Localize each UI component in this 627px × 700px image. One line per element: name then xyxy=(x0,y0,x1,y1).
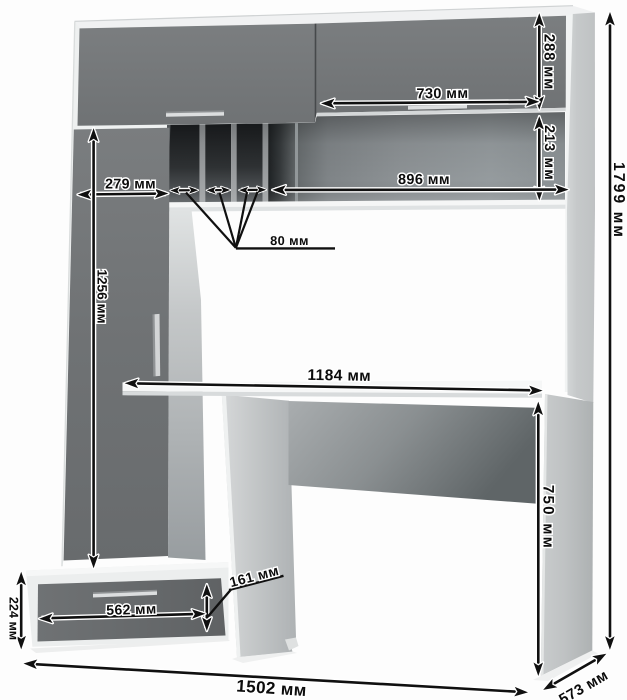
svg-text:1256 мм: 1256 мм xyxy=(95,269,110,323)
svg-text:562 мм: 562 мм xyxy=(106,601,157,618)
svg-text:1799 мм: 1799 мм xyxy=(610,162,627,239)
svg-text:288 мм: 288 мм xyxy=(541,34,558,90)
svg-text:279 мм: 279 мм xyxy=(105,176,156,192)
svg-text:730 мм: 730 мм xyxy=(416,86,468,102)
svg-text:896 мм: 896 мм xyxy=(398,172,450,188)
svg-text:1184 мм: 1184 мм xyxy=(307,367,371,385)
svg-text:224 мм: 224 мм xyxy=(6,597,20,640)
svg-text:213 мм: 213 мм xyxy=(541,125,557,181)
svg-text:80 мм: 80 мм xyxy=(270,233,309,248)
svg-text:750 мм: 750 мм xyxy=(539,485,556,550)
